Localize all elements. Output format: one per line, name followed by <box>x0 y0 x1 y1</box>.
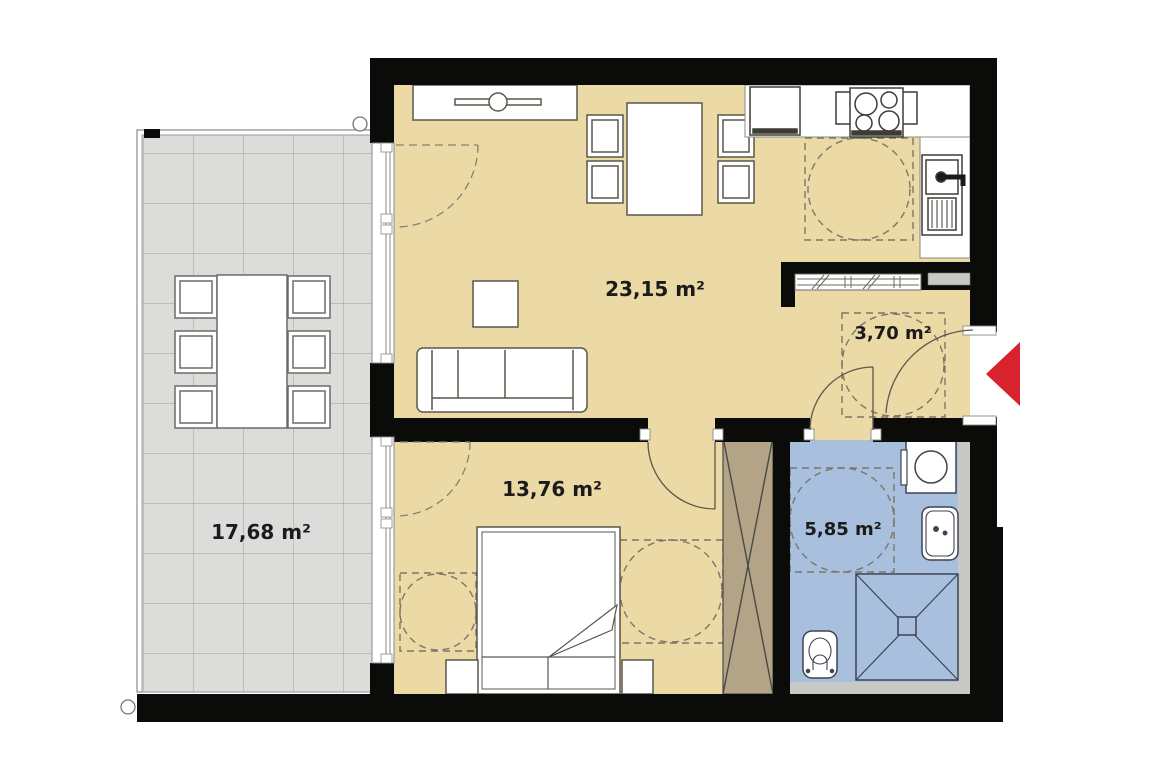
wall-top <box>370 58 997 85</box>
wall-right-lower <box>970 527 1003 697</box>
burner <box>856 115 872 131</box>
hallway-area-label: 3,70 m² <box>854 323 931 344</box>
bedroom-door-jamb <box>713 429 723 440</box>
wall-bedroom-top <box>394 418 648 442</box>
sofa <box>417 348 587 412</box>
bathroom-shaft-bottom <box>790 682 970 694</box>
wall-hall-top <box>781 262 921 274</box>
shower <box>856 574 958 680</box>
wall-right-upper <box>970 58 997 332</box>
terrace-area-label: 17,68 m² <box>211 520 311 544</box>
wall-left-a <box>370 58 394 143</box>
floor-plan: 23,15 m² 3,70 m² 13,76 m² 5,85 m² 17,68 … <box>0 0 1167 772</box>
wall-bedroom-top-right <box>715 418 781 442</box>
coffee-table <box>473 281 518 327</box>
wall-wardrobe-bathroom <box>773 418 790 694</box>
burner <box>881 92 897 108</box>
bedroom-door-jamb <box>640 429 650 440</box>
burner <box>855 93 877 115</box>
terrace-chair-seat <box>293 281 325 313</box>
kitchen-sink <box>922 155 963 235</box>
entrance-arrow-icon <box>986 342 1020 406</box>
terrace-table-6-chairs <box>175 275 330 428</box>
terrace-wall-tick <box>144 129 160 138</box>
terrace-chair-seat <box>180 391 212 423</box>
toilet <box>803 631 837 678</box>
bedroom-door-threshold <box>648 418 715 442</box>
bathroom-door-threshold <box>810 418 873 442</box>
living-room-window <box>372 143 394 363</box>
column-circle-bottom <box>121 700 135 714</box>
burner <box>879 111 899 131</box>
double-bed <box>477 527 620 694</box>
terrace-table <box>217 275 287 428</box>
column-circle-top <box>353 117 367 131</box>
hallway-floor-link <box>781 307 795 418</box>
terrace-chair-seat <box>180 336 212 368</box>
nightstand-right <box>622 660 653 694</box>
terrace <box>137 129 372 692</box>
bathroom-area-label: 5,85 m² <box>804 519 881 540</box>
fridge <box>750 87 800 135</box>
terrace-chair-seat <box>293 391 325 423</box>
wall-bathroom-top-right <box>873 418 970 442</box>
wall-bottom <box>137 694 1003 722</box>
nightstand-left <box>446 660 478 694</box>
wall-right-mid <box>970 417 997 527</box>
hallway-floor <box>795 290 970 418</box>
fridge-edge <box>753 129 797 133</box>
hallway-shelf <box>928 273 970 285</box>
closet-with-rod <box>413 85 577 120</box>
wall-hall-stub <box>781 262 795 307</box>
bedroom-window <box>372 437 394 663</box>
built-in-wardrobe <box>723 437 773 694</box>
living-room-area-label: 23,15 m² <box>605 277 705 301</box>
entrance-door-jamb <box>963 416 996 425</box>
bathroom-shaft-right <box>958 440 970 694</box>
shower-drain <box>898 617 916 635</box>
dining-table <box>627 103 702 215</box>
washing-machine <box>901 441 956 493</box>
stove <box>850 88 903 137</box>
bedroom-area-label: 13,76 m² <box>502 477 602 501</box>
closet-rod-knob <box>489 93 507 111</box>
bathroom-door-jamb <box>804 429 814 440</box>
terrace-chair-seat <box>180 281 212 313</box>
wall-left-b <box>370 363 394 437</box>
terrace-chair-seat <box>293 336 325 368</box>
washbasin <box>922 507 958 560</box>
bathroom-door-jamb <box>871 429 881 440</box>
